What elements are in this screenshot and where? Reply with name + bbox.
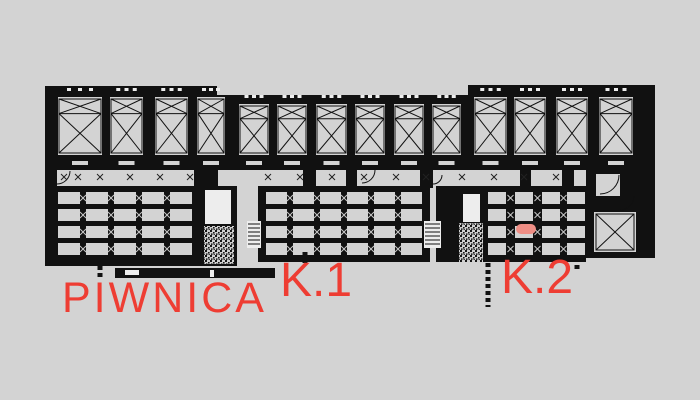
window-tick [260,95,264,98]
window-tick [216,88,220,91]
storage-cell [114,226,136,238]
window-tick [376,95,380,98]
window-tick [570,88,574,91]
storage-cell [114,209,136,221]
door-gap [522,161,538,165]
corridor-wall [194,168,218,188]
window-tick [170,88,174,91]
stall-room [474,97,507,155]
storage-cell [488,209,506,221]
corridor-wall [346,168,357,188]
corridor-wall [562,166,574,188]
window-tick [520,88,524,91]
door-gap [401,161,417,165]
window-tick [89,88,93,91]
storage-cell [266,192,287,204]
light-room [205,190,231,224]
storage-cell [567,209,585,221]
stall-room [197,97,225,155]
window-tick [614,88,618,91]
storage-cell [374,192,395,204]
window-tick [337,95,341,98]
stall-room [316,104,347,155]
storage-cell [86,209,108,221]
door-gap [324,161,340,165]
door-gap [203,161,219,165]
door-gap [164,161,180,165]
storage-cell [142,243,164,255]
window-tick [400,95,404,98]
window-tick [536,88,540,91]
door-gap [608,161,624,165]
stall-room [110,97,143,155]
window-tick [290,95,294,98]
door-gap [284,161,300,165]
window-tick [489,88,493,91]
window-tick [497,88,501,91]
storage-cell [114,243,136,255]
storage-cell [293,192,314,204]
label-piwnica: PIWNICA [62,277,267,320]
storage-cell [515,192,533,204]
label-k2: K.2 [501,254,573,302]
stair-hatch [204,226,234,264]
corridor-wall [303,168,316,188]
storage-cell [401,243,422,255]
storage-cell [114,192,136,204]
storage-cell [320,226,341,238]
door-arc [433,175,442,184]
storage-cell [142,226,164,238]
door-gap [564,161,580,165]
corridor-wall [45,168,57,188]
stall-room [599,97,633,155]
window-tick [322,95,326,98]
window-tick [245,95,249,98]
storage-cell [374,243,395,255]
door-gap [119,161,135,165]
window-tick [606,88,610,91]
storage-cell [170,209,192,221]
storage-cell [347,192,368,204]
storage-cell [320,192,341,204]
storage-cell [293,209,314,221]
window-tick [445,95,449,98]
window-tick [133,88,137,91]
stall-room [239,104,269,155]
window-tick [202,88,206,91]
window-tick [330,95,334,98]
storage-cell [86,192,108,204]
room-marker [516,224,536,234]
floorplan-canvas: PIWNICA K.1 K.2 [0,0,700,400]
window-tick [368,95,372,98]
stall-room [432,104,461,155]
stall-room [556,97,588,155]
storage-cell [58,192,80,204]
storage-cell [401,226,422,238]
storage-cell [374,226,395,238]
window-tick [283,95,287,98]
storage-cell [86,243,108,255]
storage-cell [542,192,560,204]
stall-room [277,104,307,155]
basement-floorplan-drawing [0,0,700,400]
storage-cell [567,226,585,238]
window-tick [578,88,582,91]
window-tick [623,88,627,91]
storage-cell [170,192,192,204]
window-tick [116,88,120,91]
door-gap [483,161,499,165]
door-gap [362,161,378,165]
storage-cell [542,209,560,221]
storage-cell [170,243,192,255]
storage-cell [488,226,506,238]
window-tick [415,95,419,98]
storage-cell [58,226,80,238]
storage-cell [266,226,287,238]
window-tick [298,95,302,98]
window-tick [452,95,456,98]
storage-cell [488,192,506,204]
storage-cell [58,243,80,255]
stall-room [155,97,188,155]
light-room [463,194,480,222]
storage-cell [266,209,287,221]
stall-room [58,97,102,155]
storage-cell [142,192,164,204]
storage-cell [347,226,368,238]
storage-cell [58,209,80,221]
storage-cell [515,209,533,221]
storage-cell [567,192,585,204]
window-tick [125,88,129,91]
window-tick [178,88,182,91]
storage-cell [542,226,560,238]
window-tick [407,95,411,98]
window-tick [161,88,165,91]
window-tick [562,88,566,91]
window-tick [67,88,71,91]
window-tick [437,95,441,98]
storage-cell [401,192,422,204]
storage-cell [374,209,395,221]
storage-cell [401,209,422,221]
door-gap [439,161,455,165]
door-gap [72,161,88,165]
stall-room [355,104,385,155]
stair-hatch [459,223,483,262]
stall-room [394,104,424,155]
window-tick [209,88,213,91]
window-tick [528,88,532,91]
storage-cell [320,209,341,221]
storage-cell [142,209,164,221]
storage-cell [86,226,108,238]
window-tick [252,95,256,98]
window-tick [361,95,365,98]
label-k1: K.1 [280,257,352,305]
door-gap [246,161,262,165]
window-tick [480,88,484,91]
storage-cell [293,226,314,238]
stall-room [514,97,546,155]
storage-cell [170,226,192,238]
window-tick [78,88,82,91]
storage-cell [347,209,368,221]
